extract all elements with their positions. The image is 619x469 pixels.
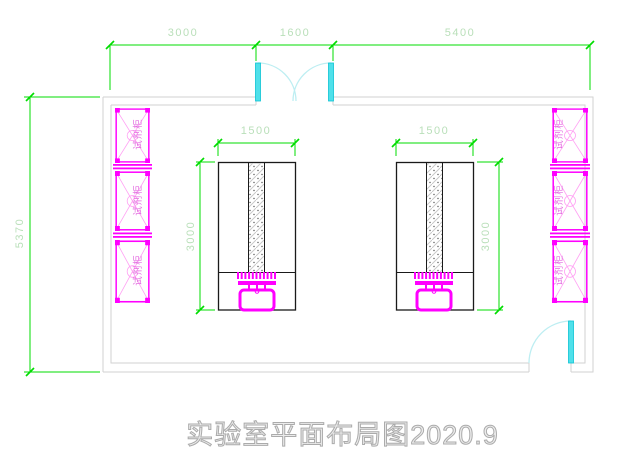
cabinet-label-left-2: 试剂柜 (133, 165, 145, 235)
cabinet-label-right-1: 试剂柜 (554, 99, 566, 169)
dim-bench-left-width: 1500 (216, 124, 296, 138)
dim-bench-right-width: 1500 (394, 124, 474, 138)
dim-top-1600: 1600 (255, 26, 335, 40)
cabinet-label-right-3: 试剂柜 (554, 235, 566, 305)
floor-plan-canvas: 3000 1600 5400 5370 1500 3000 1500 3000 … (0, 0, 619, 469)
drawing-title: 实验室平面布局图2020.9 (170, 413, 515, 452)
dim-top-5400: 5400 (420, 26, 500, 40)
floor-plan-drawing (0, 0, 619, 469)
dimension-lines (24, 41, 594, 376)
dim-bench-left-length: 3000 (184, 196, 198, 276)
double-entry-door (256, 63, 334, 101)
cabinet-label-left-3: 试剂柜 (133, 235, 145, 305)
room-walls (103, 97, 593, 372)
cabinet-label-left-1: 试剂柜 (133, 99, 145, 169)
cabinet-label-right-2: 试剂柜 (554, 165, 566, 235)
dim-room-height: 5370 (13, 193, 27, 273)
dim-bench-right-length: 3000 (479, 196, 493, 276)
rear-door (529, 321, 574, 363)
dim-top-3000: 3000 (143, 26, 223, 40)
